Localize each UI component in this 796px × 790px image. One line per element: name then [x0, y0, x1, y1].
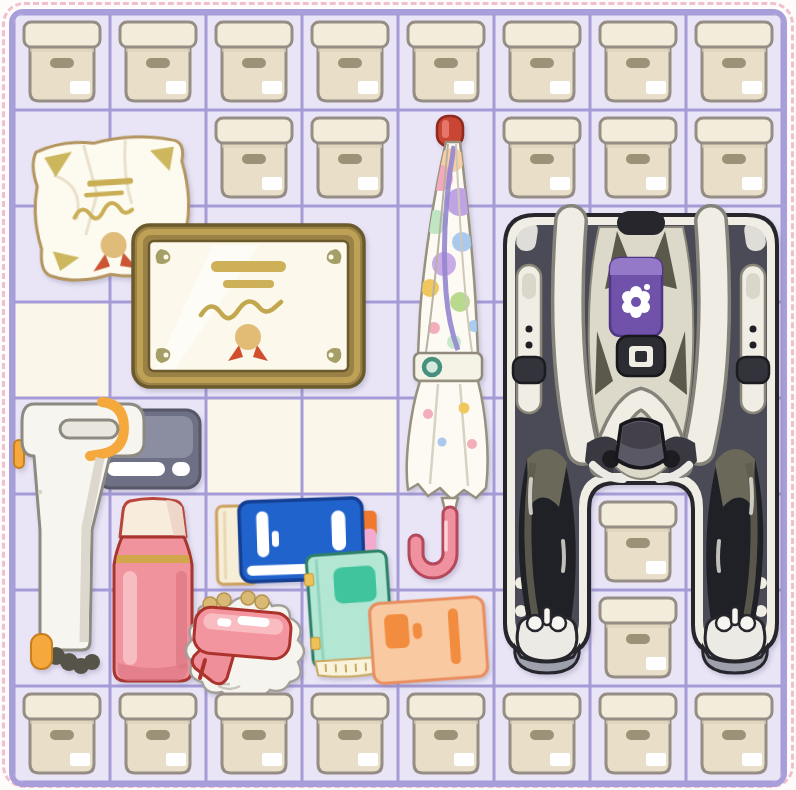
- storage-box[interactable]: [404, 20, 488, 104]
- box-handle-slot: [242, 58, 266, 68]
- box-label-sticker: [358, 177, 378, 190]
- box-label-sticker: [646, 753, 666, 766]
- orange-book-graphic: [368, 594, 491, 698]
- storage-box[interactable]: [404, 692, 488, 776]
- hair-dryer[interactable]: [172, 590, 312, 706]
- strap-button: [424, 359, 440, 375]
- box-handle-slot: [146, 58, 170, 68]
- box-label-sticker: [166, 81, 186, 94]
- box-label-sticker: [550, 177, 570, 190]
- framed-certificate-graphic: [131, 223, 366, 389]
- shoulder-strap-right: [699, 221, 714, 449]
- box-handle-slot: [530, 730, 554, 740]
- storage-box[interactable]: [500, 20, 584, 104]
- box-label-sticker: [550, 81, 570, 94]
- box-handle-slot: [626, 730, 650, 740]
- box-label-sticker: [646, 657, 666, 670]
- storage-box[interactable]: [500, 692, 584, 776]
- vacuum-foot-pedal: [31, 634, 52, 669]
- storage-box[interactable]: [596, 20, 680, 104]
- box-handle-slot: [50, 730, 74, 740]
- box-handle-slot: [626, 634, 650, 644]
- box-label-sticker: [70, 81, 90, 94]
- orange-book[interactable]: [368, 594, 491, 698]
- box-handle-slot: [146, 730, 170, 740]
- box-handle-slot: [338, 730, 362, 740]
- box-handle-slot: [530, 154, 554, 164]
- box-handle-slot: [242, 730, 266, 740]
- box-label-sticker: [454, 81, 474, 94]
- box-label-sticker: [742, 753, 762, 766]
- storage-box[interactable]: [116, 20, 200, 104]
- box-handle-slot: [338, 58, 362, 68]
- storage-box[interactable]: [20, 692, 104, 776]
- box-label-sticker: [262, 81, 282, 94]
- box-handle-slot: [434, 730, 458, 740]
- storage-box[interactable]: [20, 20, 104, 104]
- box-handle-slot: [722, 730, 746, 740]
- storage-box[interactable]: [308, 116, 392, 200]
- storage-box[interactable]: [212, 20, 296, 104]
- book-label: [384, 613, 410, 649]
- box-label-sticker: [262, 177, 282, 190]
- box-label-sticker: [70, 753, 90, 766]
- closed-umbrella-graphic: [402, 112, 498, 582]
- storage-box[interactable]: [692, 116, 776, 200]
- box-handle-slot: [434, 58, 458, 68]
- box-handle-slot: [530, 58, 554, 68]
- storage-box[interactable]: [212, 116, 296, 200]
- box-label-sticker: [166, 753, 186, 766]
- storage-box[interactable]: [500, 116, 584, 200]
- storage-box[interactable]: [596, 596, 680, 680]
- framed-certificate[interactable]: [131, 223, 366, 389]
- box-handle-slot: [338, 154, 362, 164]
- box-label-sticker: [742, 177, 762, 190]
- box-label-sticker: [454, 753, 474, 766]
- storage-box[interactable]: [692, 20, 776, 104]
- storage-box[interactable]: [596, 116, 680, 200]
- storage-box[interactable]: [596, 500, 680, 584]
- box-label-sticker: [646, 81, 666, 94]
- box-label-sticker: [742, 81, 762, 94]
- hair-dryer-graphic: [172, 590, 312, 706]
- box-handle-slot: [722, 154, 746, 164]
- box-label-sticker: [550, 753, 570, 766]
- closed-umbrella[interactable]: [402, 112, 498, 582]
- storage-box[interactable]: [308, 692, 392, 776]
- items-layer: [14, 14, 782, 782]
- box-label-sticker: [262, 753, 282, 766]
- storage-box[interactable]: [116, 692, 200, 776]
- storage-box[interactable]: [212, 692, 296, 776]
- shoulder-strap-left: [568, 221, 583, 449]
- box-handle-slot: [242, 154, 266, 164]
- storage-box[interactable]: [692, 692, 776, 776]
- box-label-sticker: [358, 753, 378, 766]
- box-handle-slot: [722, 58, 746, 68]
- box-label-sticker: [646, 561, 666, 574]
- box-handle-slot: [50, 58, 74, 68]
- box-handle-slot: [626, 538, 650, 548]
- box-handle-slot: [626, 154, 650, 164]
- box-label-sticker: [358, 81, 378, 94]
- storage-box[interactable]: [308, 20, 392, 104]
- box-label-sticker: [646, 177, 666, 190]
- box-handle-slot: [626, 58, 650, 68]
- game-board: [0, 0, 796, 790]
- storage-box[interactable]: [596, 692, 680, 776]
